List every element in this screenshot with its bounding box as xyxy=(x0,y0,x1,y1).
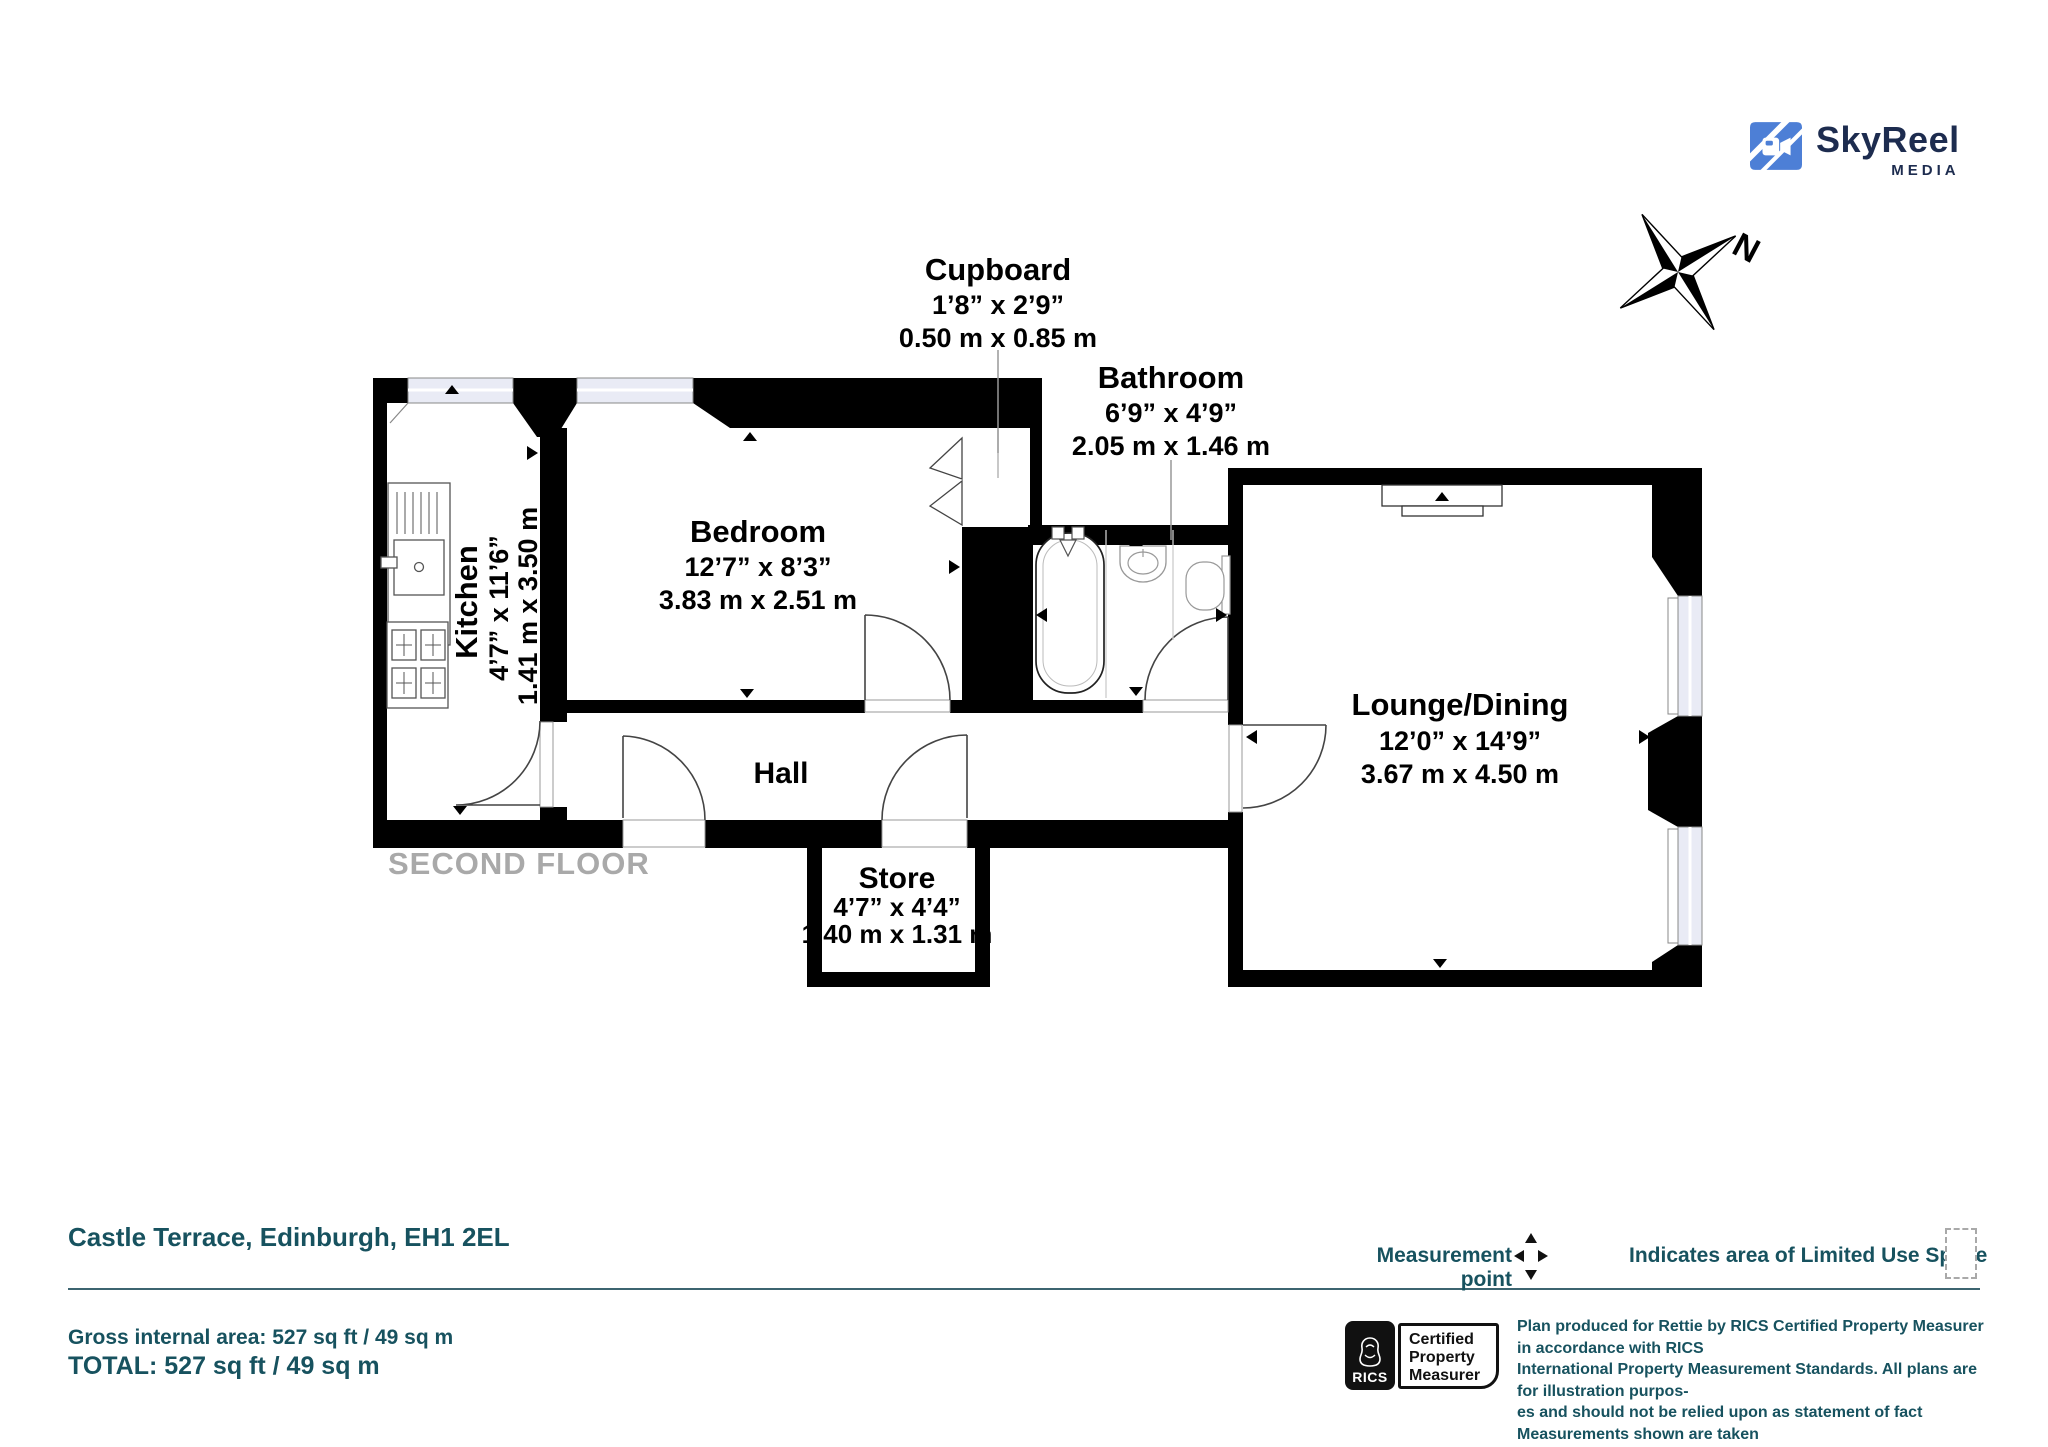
measurement-point-icon xyxy=(1514,1233,1548,1280)
bathroom-dims-metric: 2.05 m x 1.46 m xyxy=(1072,431,1270,461)
bathroom-label: Bathroom xyxy=(1098,360,1244,395)
store-dims-metric: 1.40 m x 1.31 m xyxy=(802,919,993,949)
store-door xyxy=(882,735,967,820)
bedroom-label: Bedroom xyxy=(690,514,826,549)
kitchen-label: Kitchen xyxy=(449,545,484,659)
skyreel-camera-icon xyxy=(1750,122,1802,170)
cupboard-label: Cupboard xyxy=(925,252,1071,287)
gross-area-text: Gross internal area: 527 sq ft / 49 sq m xyxy=(68,1326,453,1350)
compass-rose: N xyxy=(1584,210,1771,366)
floor-plan: N xyxy=(350,210,1780,1010)
doors xyxy=(456,615,1326,820)
kitchen-dims-metric: 1.41 m x 3.50 m xyxy=(513,507,543,705)
kitchen-door xyxy=(456,721,540,805)
bath-tap xyxy=(1052,527,1064,539)
rics-wordmark: RICS xyxy=(1352,1369,1387,1385)
floor-level-label: SECOND FLOOR xyxy=(388,846,650,881)
lounge-dims-metric: 3.67 m x 4.50 m xyxy=(1361,759,1559,789)
bathroom-door xyxy=(1145,617,1228,700)
bedroom-door xyxy=(865,615,950,700)
cupboard-dims-imperial: 1’8” x 2’9” xyxy=(932,290,1064,320)
floorplan-page: SkyReel MEDIA N xyxy=(0,0,2048,1447)
kitchen-fixtures xyxy=(381,483,450,708)
compass-north-label: N xyxy=(1726,226,1766,271)
bedroom-dims-metric: 3.83 m x 2.51 m xyxy=(659,585,857,615)
skyreel-logo: SkyReel MEDIA xyxy=(1750,122,1960,178)
certified-measurer-badge: Certified Property Measurer xyxy=(1398,1323,1499,1389)
lounge-dims-imperial: 12’0” x 14’9” xyxy=(1379,726,1541,756)
bedroom-dims-imperial: 12’7” x 8’3” xyxy=(684,552,831,582)
total-area-text: TOTAL: 527 sq ft / 49 sq m xyxy=(68,1352,380,1381)
store-label: Store xyxy=(859,862,936,895)
hall-label: Hall xyxy=(753,757,808,790)
limited-use-swatch xyxy=(1945,1228,1977,1279)
lounge-label: Lounge/Dining xyxy=(1352,687,1569,722)
stove xyxy=(387,622,448,708)
store-dims-imperial: 4’7” x 4’4” xyxy=(833,892,960,922)
logo-wordmark: SkyReel xyxy=(1816,122,1960,158)
disclaimer-text: Plan produced for Rettie by RICS Certifi… xyxy=(1517,1316,1997,1447)
entrance-door xyxy=(623,736,705,820)
property-address: Castle Terrace, Edinburgh, EH1 2EL xyxy=(68,1222,510,1253)
bathroom-fixtures xyxy=(1036,527,1230,698)
toilet xyxy=(1186,562,1224,610)
cupboard-dims-metric: 0.50 m x 0.85 m xyxy=(899,323,1097,353)
cupboard-bifold-doors xyxy=(930,430,998,525)
kitchen-dims-imperial: 4’7” x 11’6” xyxy=(484,535,514,681)
logo-subtext: MEDIA xyxy=(1891,163,1959,178)
divider-line xyxy=(68,1288,1980,1290)
limited-use-label: Indicates area of Limited Use Space xyxy=(1629,1244,1987,1268)
sink-tap xyxy=(381,557,397,568)
bath-tap xyxy=(1072,527,1084,539)
rics-lion-icon xyxy=(1355,1335,1385,1369)
walls xyxy=(373,378,1702,987)
measurement-point-label: Measurement point xyxy=(1340,1244,1512,1292)
rics-logo: RICS xyxy=(1345,1321,1395,1390)
bathroom-dims-imperial: 6’9” x 4’9” xyxy=(1105,398,1237,428)
